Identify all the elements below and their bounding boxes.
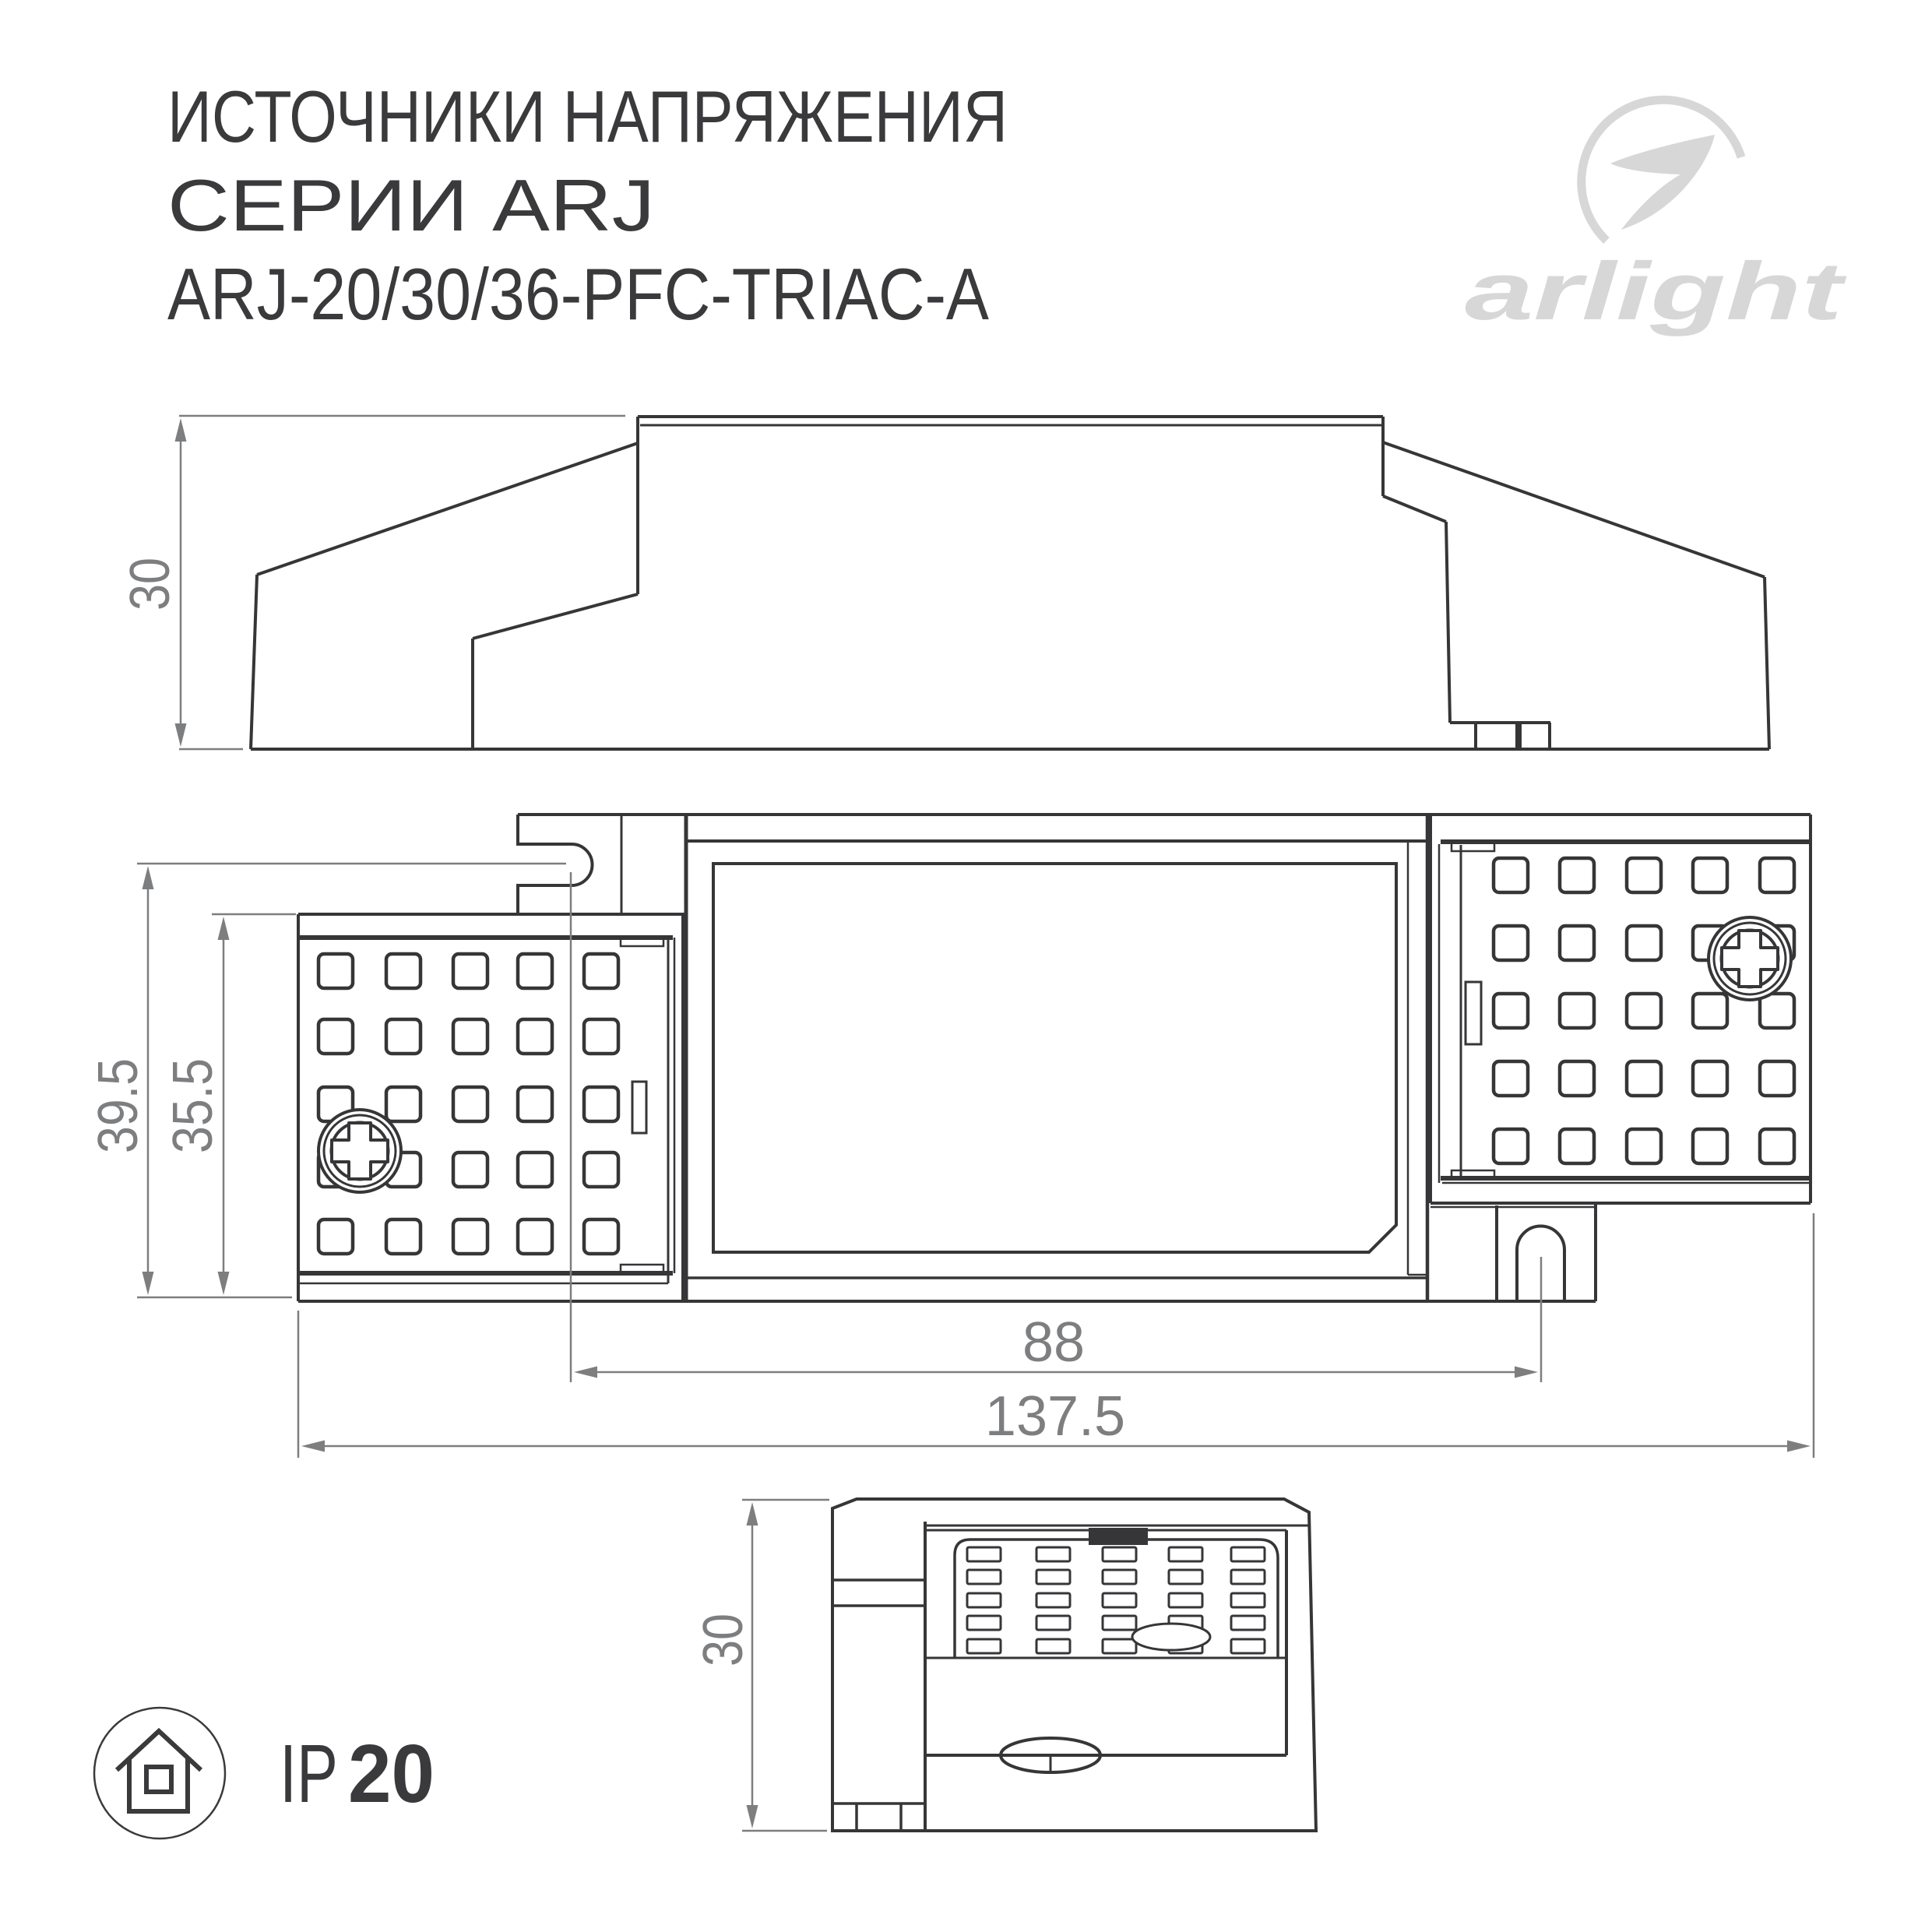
svg-text:39.5: 39.5: [87, 1058, 150, 1153]
svg-text:arlight: arlight: [1465, 246, 1847, 337]
svg-text:30: 30: [692, 1614, 755, 1666]
svg-text:35.5: 35.5: [162, 1058, 224, 1153]
svg-text:ИСТОЧНИКИ НАПРЯЖЕНИЯ: ИСТОЧНИКИ НАПРЯЖЕНИЯ: [167, 76, 1008, 157]
svg-text:137.5: 137.5: [985, 1385, 1125, 1448]
svg-text:30: 30: [119, 558, 181, 611]
svg-text:СЕРИИ ARJ: СЕРИИ ARJ: [167, 164, 655, 246]
svg-text:ARJ-20/30/36-PFC-TRIAC-A: ARJ-20/30/36-PFC-TRIAC-A: [167, 253, 989, 335]
svg-text:88: 88: [1022, 1311, 1085, 1374]
svg-text:IP20: IP20: [280, 1728, 435, 1820]
